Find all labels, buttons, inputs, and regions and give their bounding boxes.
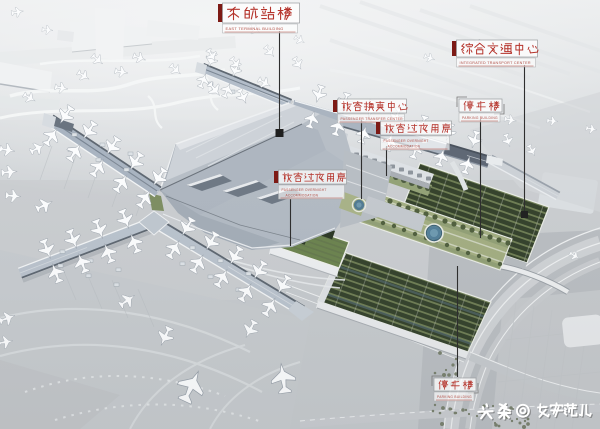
- svg-text:ACCOMMODATION: ACCOMMODATION: [388, 145, 421, 149]
- svg-text:PARKING BUILDING: PARKING BUILDING: [462, 116, 498, 120]
- svg-text:ACCOMMODATION: ACCOMMODATION: [286, 194, 319, 198]
- svg-text:INTEGRATED TRANSPORT CENTER: INTEGRATED TRANSPORT CENTER: [460, 61, 531, 65]
- svg-text:EAST TERMINAL BUILDING: EAST TERMINAL BUILDING: [226, 26, 284, 31]
- svg-text:PARKING BUILDING: PARKING BUILDING: [437, 395, 472, 399]
- svg-text:PASSENGER OVERNIGHT: PASSENGER OVERNIGHT: [384, 139, 429, 143]
- svg-text:PASSENGER TRANSFER CENTER: PASSENGER TRANSFER CENTER: [341, 117, 404, 121]
- svg-text:PASSENGER OVERNIGHT: PASSENGER OVERNIGHT: [282, 188, 327, 192]
